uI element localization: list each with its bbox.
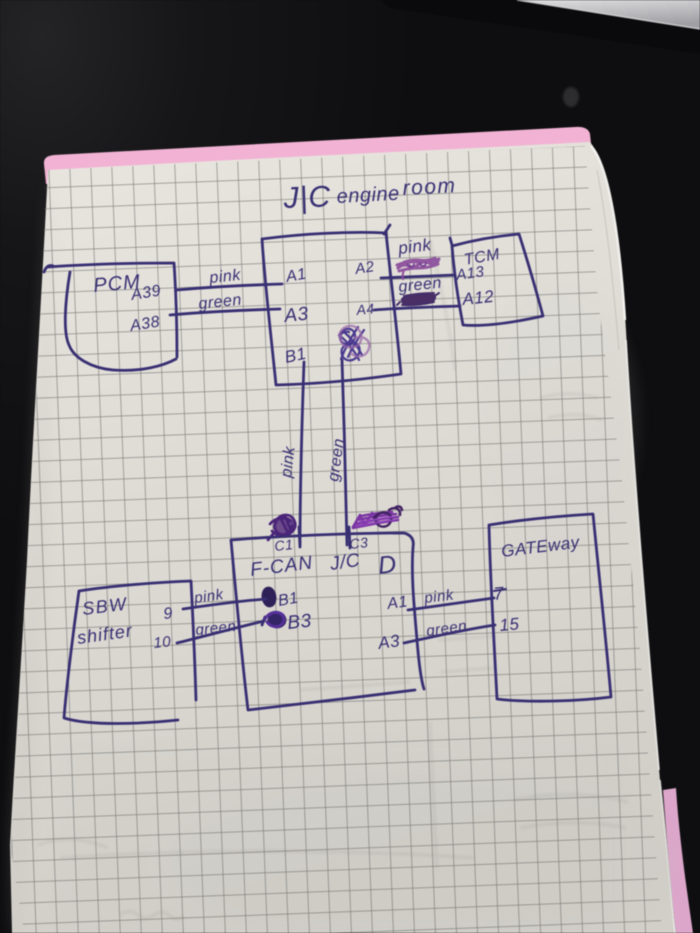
svg-text:room: room: [402, 174, 457, 200]
svg-text:pink: pink: [208, 267, 242, 287]
svg-text:J|C: J|C: [282, 180, 332, 215]
svg-text:C3: C3: [349, 534, 369, 552]
svg-text:B1: B1: [277, 590, 300, 610]
svg-text:A4: A4: [355, 300, 376, 318]
svg-text:9: 9: [163, 605, 174, 623]
svg-text:A2: A2: [353, 258, 376, 278]
svg-text:engine: engine: [336, 183, 400, 208]
svg-text:A1: A1: [385, 593, 409, 613]
svg-text:A12: A12: [460, 287, 495, 309]
svg-text:A3: A3: [376, 631, 401, 653]
svg-text:D: D: [377, 550, 398, 580]
svg-text:J/C: J/C: [328, 550, 362, 575]
svg-text:C1: C1: [274, 536, 294, 554]
svg-text:15: 15: [499, 614, 521, 635]
svg-text:A3: A3: [282, 304, 309, 328]
svg-text:B3: B3: [286, 611, 312, 634]
svg-text:10: 10: [153, 633, 173, 652]
